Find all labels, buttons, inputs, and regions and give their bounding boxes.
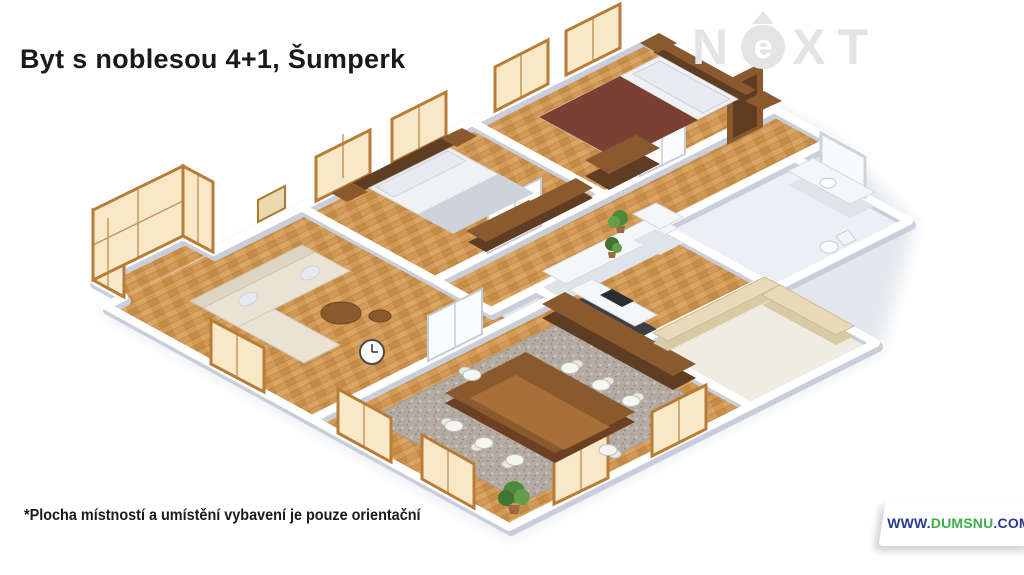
website-url-suffix: .COM xyxy=(993,515,1024,531)
floorplan-3d-render xyxy=(0,0,1024,575)
next-logo-watermark: N e XT xyxy=(692,18,880,76)
next-logo-letter-n: N xyxy=(692,18,734,76)
next-logo-letters-xt: XT xyxy=(792,18,880,76)
side-table xyxy=(369,310,391,322)
website-url-prefix: WWW. xyxy=(887,515,931,531)
up-arrow-icon xyxy=(752,11,774,24)
sink xyxy=(820,178,836,188)
website-url: WWW.DUMSNU.COM xyxy=(882,501,1024,546)
next-logo-circled-e: e xyxy=(741,25,785,69)
disclaimer-text: *Plocha místností a umístění vybavení je… xyxy=(24,507,421,525)
floorplan-page: Byt s noblesou 4+1, Šumperk N e XT xyxy=(0,0,1024,575)
page-title: Byt s noblesou 4+1, Šumperk xyxy=(20,44,405,75)
website-badge: WWW.DUMSNU.COM xyxy=(878,501,1024,546)
website-url-brand: DUMSNU xyxy=(931,515,994,531)
toilet xyxy=(820,241,838,253)
coffee-table xyxy=(321,302,361,324)
